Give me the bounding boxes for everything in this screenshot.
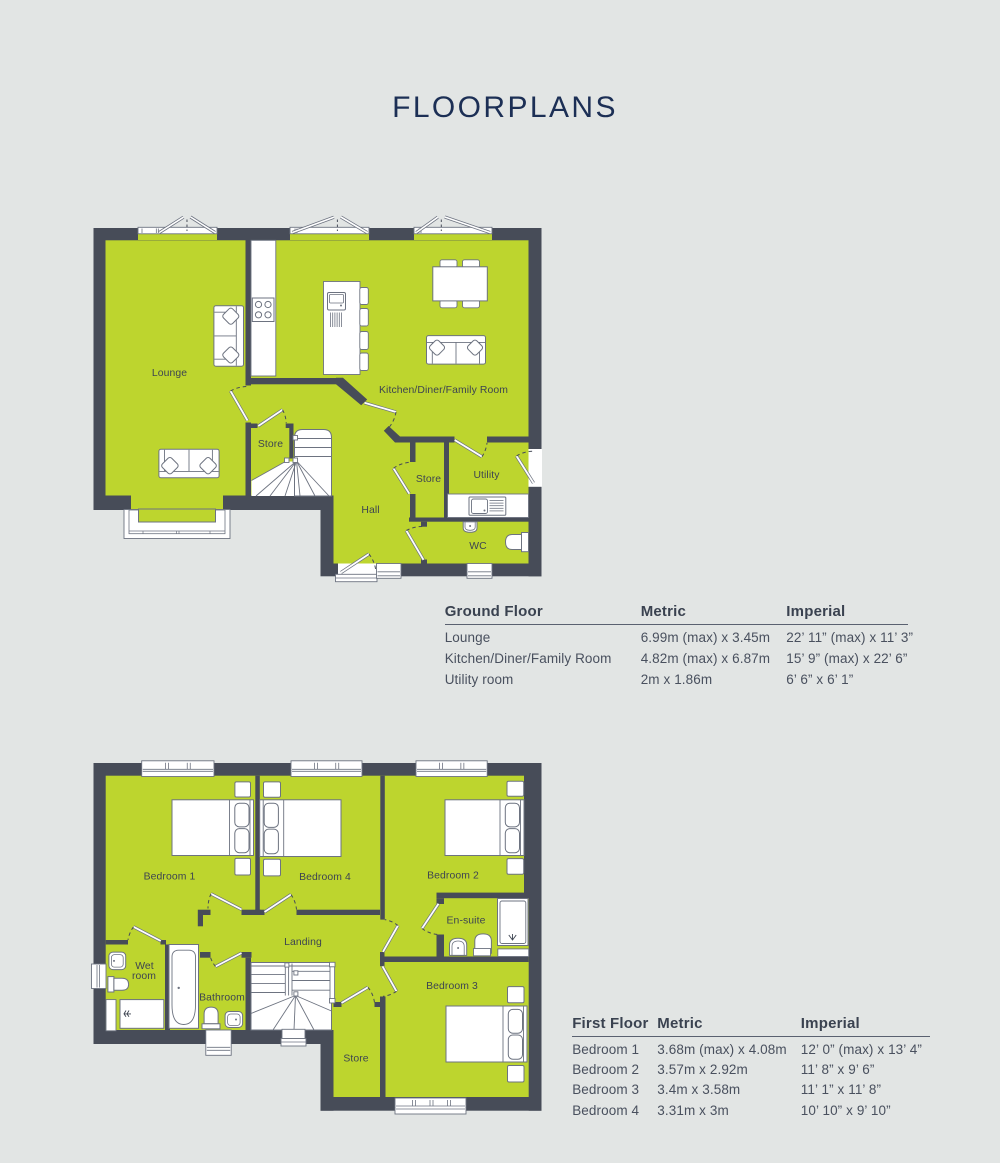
svg-text:Kitchen/Diner/Family Room: Kitchen/Diner/Family Room bbox=[379, 385, 508, 396]
svg-text:Landing: Landing bbox=[284, 937, 322, 948]
svg-text:Lounge: Lounge bbox=[152, 368, 187, 379]
svg-text:Store: Store bbox=[258, 439, 283, 450]
svg-text:Store: Store bbox=[343, 1053, 368, 1064]
svg-text:Bedroom 2: Bedroom 2 bbox=[427, 871, 479, 882]
svg-text:Bedroom 3: Bedroom 3 bbox=[426, 981, 478, 992]
svg-text:Store: Store bbox=[416, 474, 441, 485]
svg-text:Utility: Utility bbox=[473, 470, 500, 481]
svg-text:Bedroom 4: Bedroom 4 bbox=[299, 872, 351, 883]
svg-text:En-suite: En-suite bbox=[447, 916, 486, 927]
svg-text:Bedroom 1: Bedroom 1 bbox=[144, 872, 196, 883]
svg-text:Bathroom: Bathroom bbox=[199, 992, 245, 1003]
svg-text:room: room bbox=[132, 971, 156, 982]
svg-text:WC: WC bbox=[469, 541, 487, 552]
svg-text:Hall: Hall bbox=[361, 505, 379, 516]
